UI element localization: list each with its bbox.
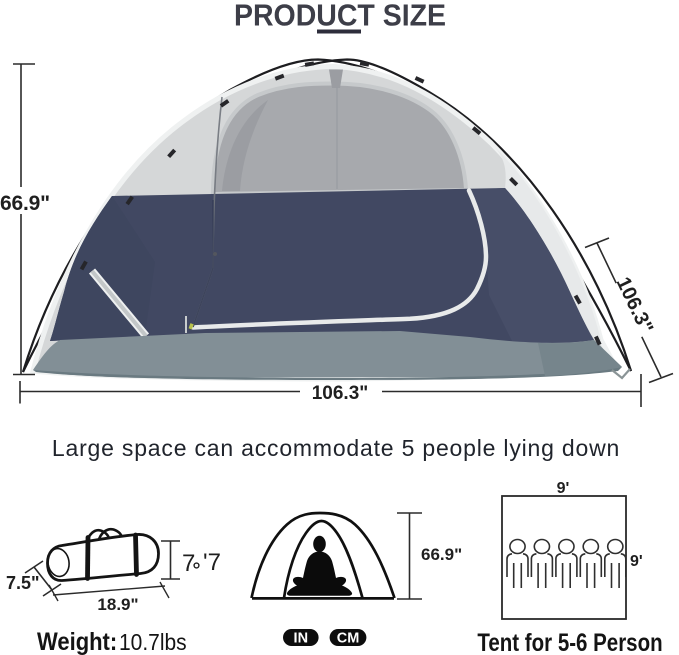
svg-text:10.7lbs: 10.7lbs (119, 629, 187, 655)
svg-text:Weight:: Weight: (37, 628, 117, 655)
svg-text:18.9": 18.9" (97, 595, 138, 614)
svg-text:9': 9' (630, 553, 643, 570)
svg-text:Large space can accommodate 5: Large space can accommodate 5 people lyi… (52, 435, 620, 461)
svg-text:66.9": 66.9" (421, 545, 462, 564)
svg-text:106.3": 106.3" (312, 383, 369, 404)
svg-text:PRODUCT SIZE: PRODUCT SIZE (234, 0, 446, 33)
svg-text:Tent for 5-6 Person: Tent for 5-6 Person (477, 628, 662, 655)
svg-text:'7: '7 (203, 549, 221, 576)
svg-text:7.5": 7.5" (6, 573, 40, 593)
svg-text:IN: IN (294, 631, 309, 647)
svg-text:66.9": 66.9" (0, 192, 50, 215)
svg-text:CM: CM (337, 631, 360, 647)
svg-text:9': 9' (557, 480, 570, 497)
svg-text:7: 7 (182, 550, 195, 577)
